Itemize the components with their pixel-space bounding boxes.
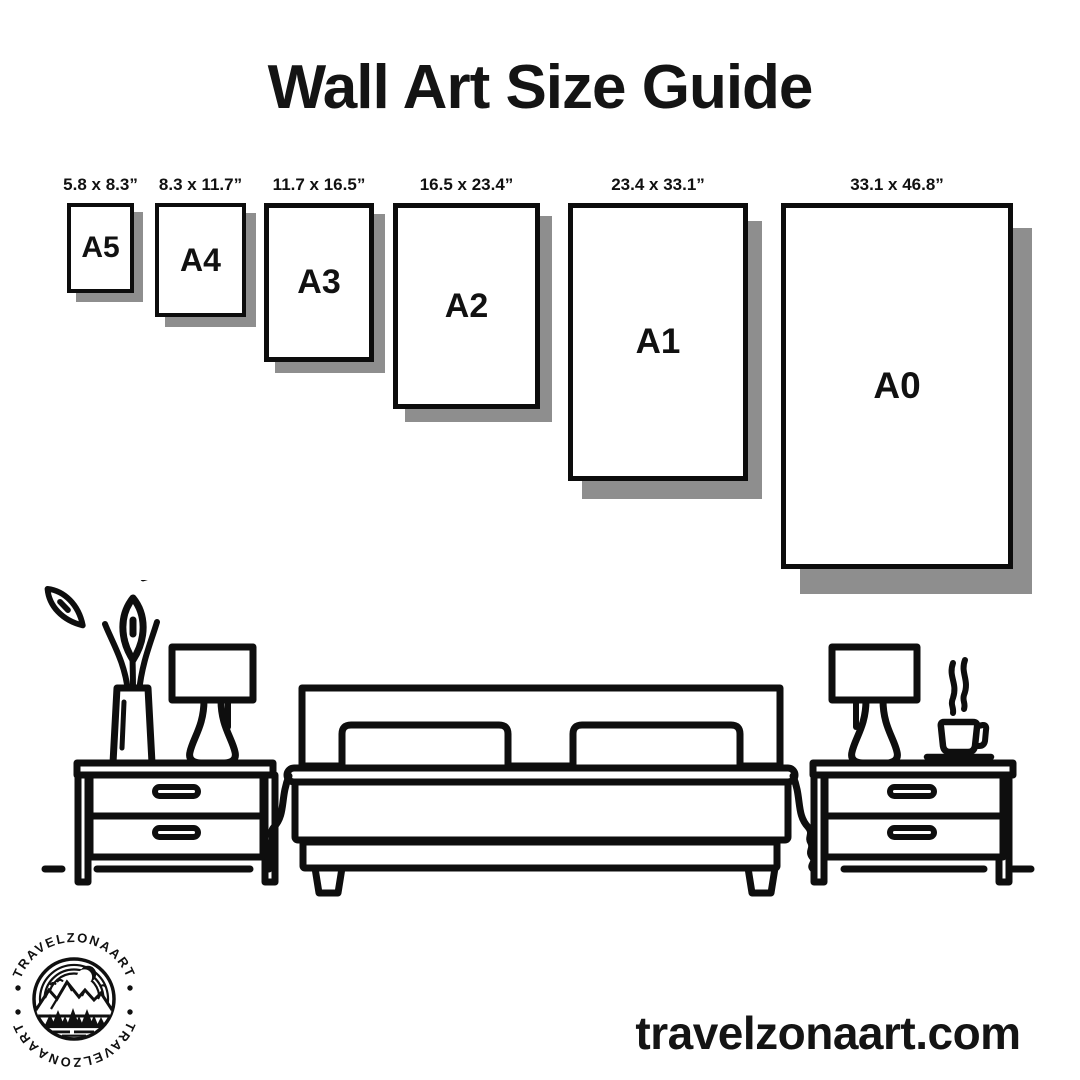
size-dimensions: 5.8 x 8.3”	[63, 175, 138, 195]
size-item-a2: 16.5 x 23.4” A2	[393, 203, 540, 409]
nightstand-left-icon	[77, 763, 275, 882]
size-item-a3: 11.7 x 16.5” A3	[264, 203, 374, 362]
coffee-cup-icon	[927, 660, 991, 757]
table-lamp-left-icon	[172, 647, 253, 763]
size-label: A3	[297, 263, 340, 302]
table-lamp-right-icon	[832, 647, 917, 763]
flower-vase-icon	[42, 580, 182, 763]
size-label: A2	[445, 287, 488, 326]
poster-frame-a5: A5	[67, 203, 134, 293]
size-dimensions: 11.7 x 16.5”	[273, 175, 366, 195]
size-dimensions: 33.1 x 46.8”	[850, 175, 944, 195]
size-item-a5: 5.8 x 8.3” A5	[67, 203, 134, 293]
size-item-a4: 8.3 x 11.7” A4	[155, 203, 246, 317]
size-item-a1: 23.4 x 33.1” A1	[568, 203, 748, 481]
size-dimensions: 16.5 x 23.4”	[420, 175, 514, 195]
poster-frame-a2: A2	[393, 203, 540, 409]
poster-frame-a3: A3	[264, 203, 374, 362]
size-label: A4	[180, 242, 221, 279]
poster-frame-a1: A1	[568, 203, 748, 481]
size-label: A5	[81, 231, 119, 265]
nightstand-right-icon	[813, 763, 1013, 882]
double-bed-icon	[268, 688, 814, 893]
bedroom-illustration	[0, 580, 1080, 905]
size-label: A0	[873, 365, 920, 407]
brand-logo: TRAVELZONAART TRAVELZONAART	[4, 926, 146, 1072]
poster-frame-a4: A4	[155, 203, 246, 317]
size-dimensions: 8.3 x 11.7”	[159, 175, 242, 195]
size-guide-poster: Wall Art Size Guide 5.8 x 8.3” A5 8.3 x …	[0, 0, 1080, 1080]
size-dimensions: 23.4 x 33.1”	[611, 175, 705, 195]
page-title: Wall Art Size Guide	[0, 52, 1080, 123]
website-url: travelzonaart.com	[578, 1006, 1078, 1060]
poster-frame-a0: A0	[781, 203, 1013, 569]
size-item-a0: 33.1 x 46.8” A0	[781, 203, 1013, 569]
size-label: A1	[636, 322, 681, 362]
